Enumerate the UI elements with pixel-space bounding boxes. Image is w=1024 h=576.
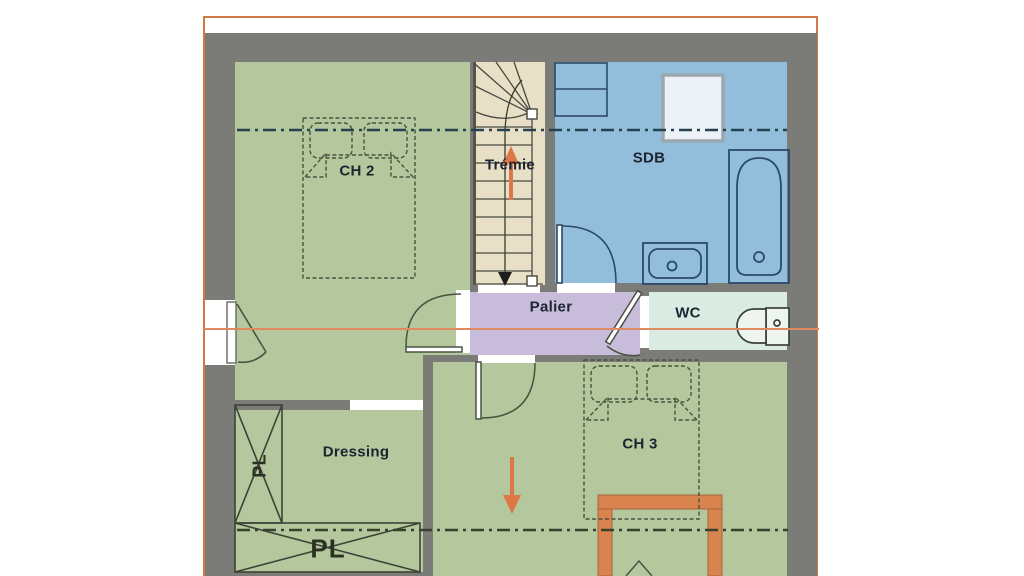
ch2-bed xyxy=(303,118,415,278)
wc-door xyxy=(606,291,642,356)
roof-window-frame xyxy=(598,495,722,576)
label-palier: Palier xyxy=(530,299,573,316)
sdb-cabinet xyxy=(555,63,607,116)
label-ch3: CH 3 xyxy=(622,436,657,453)
label-pl-bottom: PL xyxy=(310,534,345,565)
floor-plan-page: CH 2 Trémie SDB Palier WC Dressing CH 3 … xyxy=(0,0,1024,576)
label-sdb: SDB xyxy=(633,150,666,167)
sdb-door xyxy=(557,225,616,283)
label-dressing: Dressing xyxy=(323,444,390,461)
label-tremie: Trémie xyxy=(485,157,535,174)
left-window xyxy=(227,302,266,363)
label-pl-side: PL xyxy=(250,454,271,478)
ch2-door xyxy=(406,294,462,352)
plan-linework xyxy=(0,0,1024,576)
ch3-door xyxy=(476,362,535,419)
ch3-down-arrow xyxy=(503,457,521,514)
bathtub xyxy=(729,150,789,283)
label-ch2: CH 2 xyxy=(339,163,374,180)
toilet xyxy=(737,308,789,345)
label-wc: WC xyxy=(675,305,701,322)
washbasin xyxy=(643,243,707,284)
